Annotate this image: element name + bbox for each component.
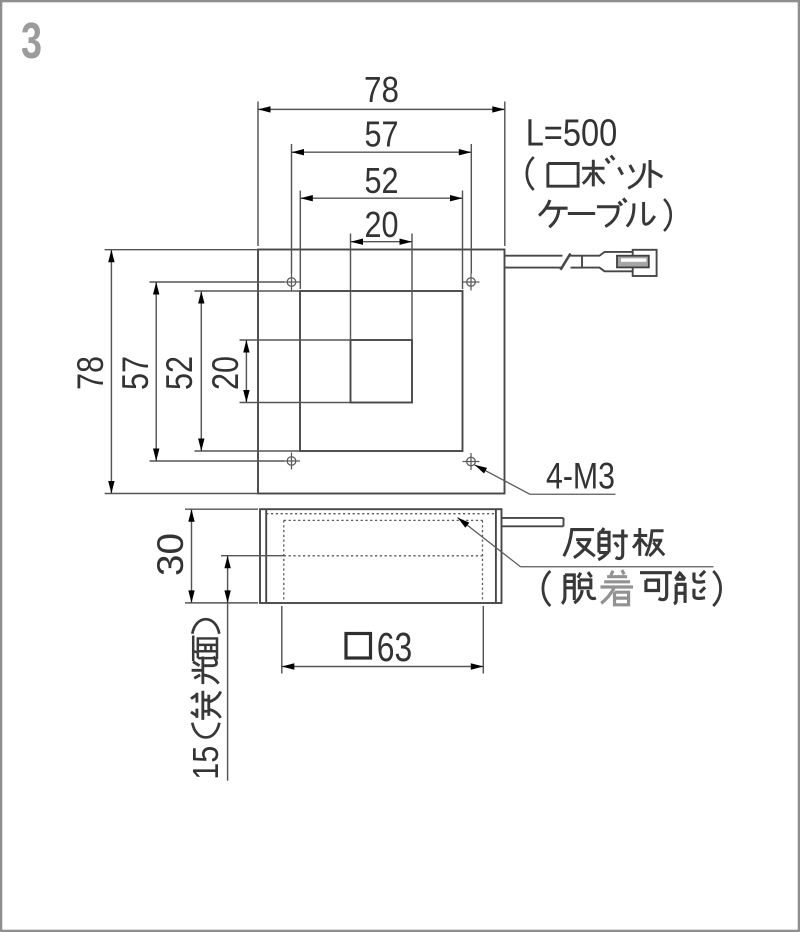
svg-text:52: 52 [159,356,200,390]
svg-text:52: 52 [365,160,399,201]
svg-text:20: 20 [205,356,246,390]
svg-text:20: 20 [365,204,399,245]
svg-text:30: 30 [150,533,191,576]
svg-text:78: 78 [364,69,399,110]
svg-text:57: 57 [365,114,399,155]
svg-text:L=500: L=500 [526,113,618,155]
svg-text:63: 63 [377,624,413,670]
svg-text:3: 3 [21,12,42,69]
svg-text:78: 78 [70,356,111,390]
svg-text:15: 15 [185,746,226,780]
svg-text:57: 57 [115,356,156,390]
svg-text:4-M3: 4-M3 [546,456,615,497]
